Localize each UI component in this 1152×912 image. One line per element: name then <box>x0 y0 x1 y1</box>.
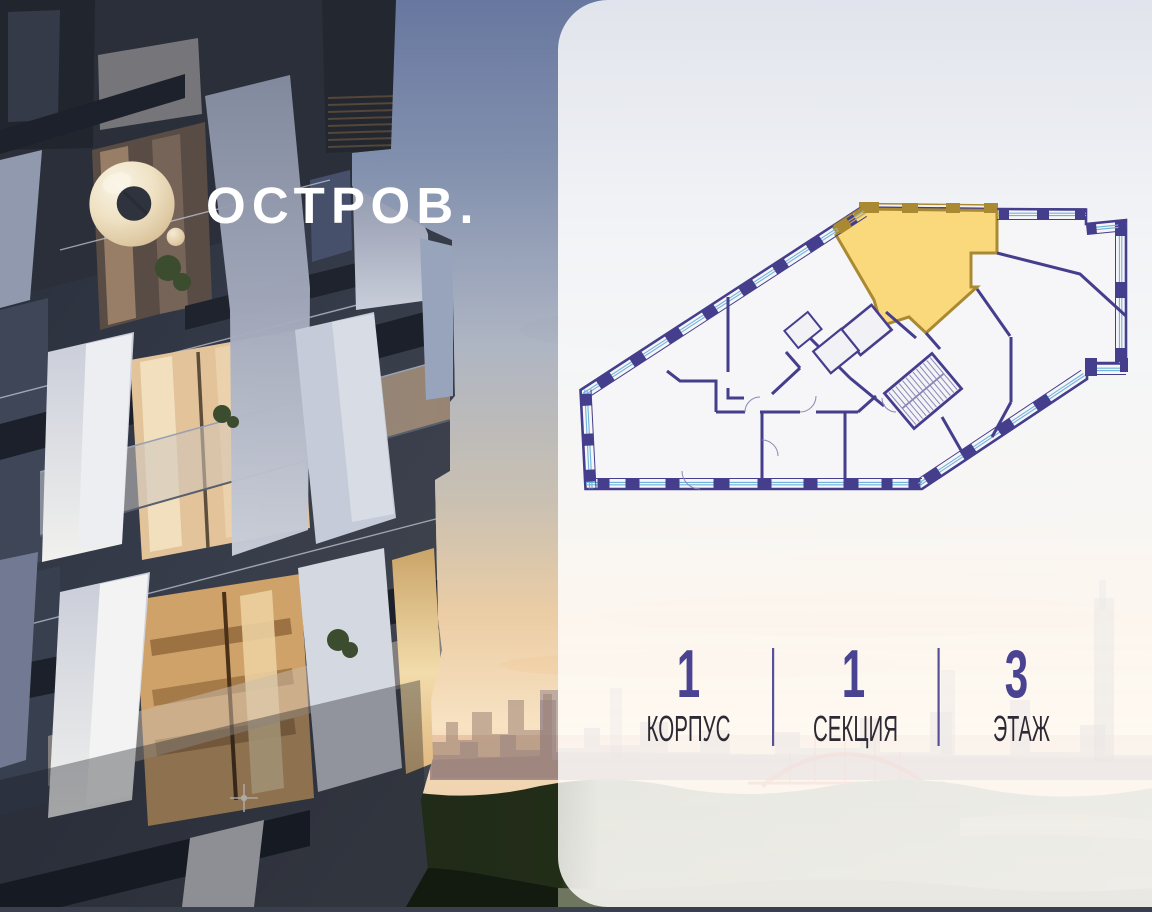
svg-text:1: 1 <box>842 636 865 712</box>
svg-text:3: 3 <box>1005 636 1028 712</box>
svg-text:ОСТРОВ.: ОСТРОВ. <box>206 177 480 234</box>
svg-text:КОРПУС: КОРПУС <box>647 708 731 749</box>
svg-text:ЭТАЖ: ЭТАЖ <box>993 708 1050 749</box>
svg-text:СЕКЦИЯ: СЕКЦИЯ <box>813 708 898 749</box>
svg-text:1: 1 <box>677 636 700 712</box>
